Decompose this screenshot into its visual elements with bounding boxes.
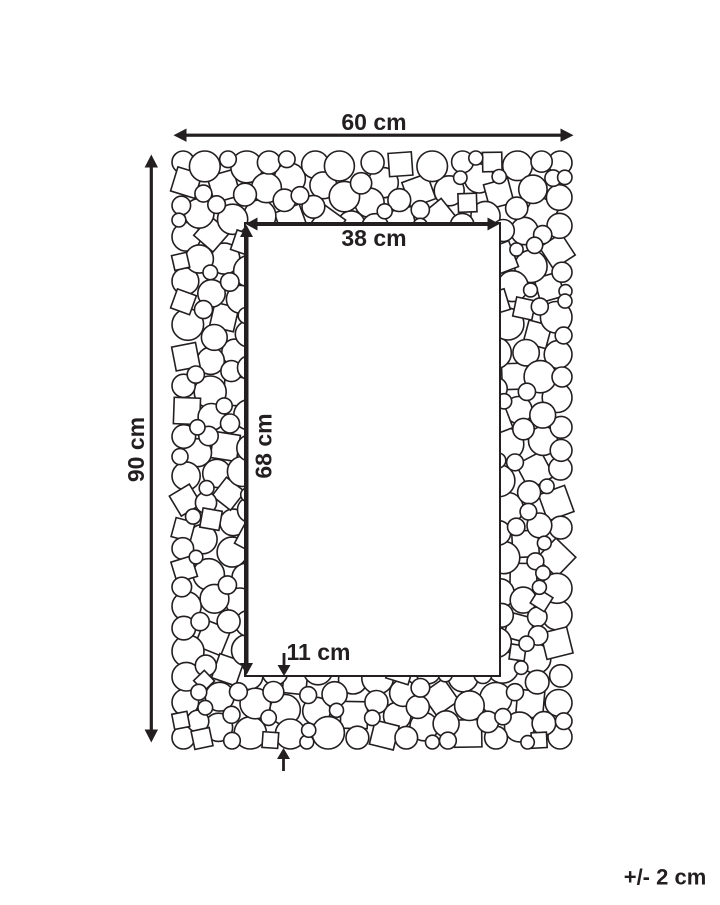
svg-text:+/- 2 cm: +/- 2 cm [624, 865, 707, 890]
svg-text:68 cm: 68 cm [250, 413, 276, 478]
svg-text:38 cm: 38 cm [341, 225, 406, 251]
svg-text:90 cm: 90 cm [123, 417, 149, 482]
svg-text:60 cm: 60 cm [341, 109, 406, 135]
svg-text:11 cm: 11 cm [287, 639, 351, 665]
